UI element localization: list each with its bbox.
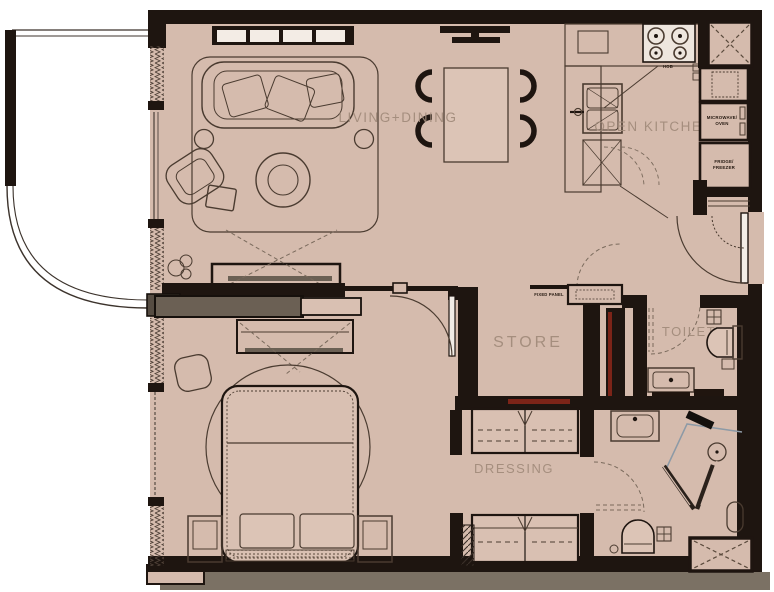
- curtain-strip: [150, 46, 164, 106]
- balcony: [5, 30, 150, 308]
- microwave-label-line1: MICROWAVE/: [707, 115, 738, 120]
- bedroom-dresser: [237, 320, 353, 353]
- headboard: [226, 550, 354, 561]
- sliding-panel-tan: [301, 298, 361, 315]
- bedroom-door-leaf: [449, 296, 455, 356]
- hob-burner-dot: [654, 51, 657, 54]
- toilet-wall-top-left: [622, 295, 647, 308]
- shelf-box: [250, 30, 279, 42]
- fixed-panel-line: [530, 285, 568, 289]
- curtain-strip: [150, 506, 164, 566]
- floor-plan-svg: LIVING+DINING HOB: [0, 0, 774, 592]
- entry-opening: [746, 212, 764, 284]
- wall-segment: [580, 410, 594, 457]
- appliance-column: MICROWAVE/ OVEN FRIDGE/ FREEZER: [698, 22, 752, 188]
- fridge-label-line2: FREEZER: [713, 165, 736, 170]
- partition-wall: [162, 283, 345, 297]
- fridge-label-line1: FRIDGE/: [714, 159, 734, 164]
- sink-faucet-dot: [633, 417, 637, 421]
- microwave-label-line2: OVEN: [715, 121, 728, 126]
- entry-threshold: [705, 188, 752, 197]
- fridge-freezer-unit: FRIDGE/ FREEZER: [700, 143, 750, 188]
- tv-bar: [440, 26, 510, 33]
- floor-plan-page: LIVING+DINING HOB: [0, 0, 774, 592]
- service-shaft-bottom: [690, 538, 752, 571]
- toilet-wall-top-right: [700, 295, 752, 308]
- bedroom-right-wall-top: [450, 410, 462, 455]
- mullion: [148, 383, 164, 392]
- living-dining-label: LIVING+DINING: [339, 110, 458, 125]
- washer-unit: [700, 68, 748, 101]
- tv-shelf: [452, 37, 500, 43]
- wall-red-accent: [508, 399, 570, 404]
- wardrobe-bottom: [472, 515, 578, 562]
- mullion: [148, 219, 164, 228]
- wardrobe-top: [472, 409, 578, 453]
- rain-shower-dot: [715, 450, 718, 453]
- kitchen-store-niche: [568, 285, 622, 304]
- store-label: STORE: [493, 334, 563, 351]
- entry-side-wall: [693, 180, 707, 215]
- tv-console-living: [212, 264, 340, 286]
- store-right-wall: [583, 300, 600, 403]
- hob: HOB: [643, 24, 695, 69]
- hob-label: HOB: [663, 64, 673, 69]
- shelf-box: [217, 30, 246, 42]
- wall-segment: [580, 513, 594, 568]
- wc-bowl: [707, 328, 733, 357]
- mullion: [148, 101, 164, 110]
- bed: [222, 386, 358, 562]
- microwave-oven-unit: MICROWAVE/ OVEN: [700, 103, 748, 140]
- shelf-box: [283, 30, 312, 42]
- mullion: [148, 497, 164, 506]
- bottom-edge-band: [160, 572, 770, 590]
- tv-console: [212, 264, 340, 286]
- shelf-box: [316, 30, 345, 42]
- bathroom-right-wall: [737, 410, 752, 538]
- pillow: [300, 514, 354, 548]
- wc-bowl: [622, 520, 654, 553]
- pillow: [240, 514, 294, 548]
- hob-burner-dot: [678, 34, 682, 38]
- vanity-faucet-dot: [669, 378, 673, 382]
- wall-top: [150, 10, 762, 24]
- fixed-panel-label: FIXED PANEL: [534, 292, 564, 297]
- washer-box: [700, 68, 748, 101]
- hob-burner-dot: [678, 51, 681, 54]
- wall-shelf-unit: [212, 26, 354, 45]
- store-left-wall: [458, 287, 478, 399]
- balcony-side-wall: [5, 30, 16, 186]
- hatched-post: [461, 525, 474, 566]
- wall-left-top-column: [148, 10, 166, 48]
- hob-burner-dot: [654, 34, 658, 38]
- toilet-left-wall: [633, 308, 647, 396]
- curtain-strip: [150, 228, 164, 290]
- toilet-right-wall: [737, 308, 752, 396]
- service-shaft-top: [708, 22, 752, 66]
- curtain-strip: [150, 318, 164, 384]
- dressing-label: DRESSING: [474, 461, 554, 476]
- shaft-box: [708, 22, 752, 66]
- balcony-curved-rail-inner: [13, 186, 148, 300]
- open-kitchen-label: OPEN KITCHEN: [594, 119, 713, 134]
- sliding-handle: [393, 283, 407, 293]
- dresser-shelf: [245, 348, 343, 352]
- sliding-panel-gray: [155, 296, 303, 317]
- mid-horizontal-wall: [455, 396, 752, 410]
- wall-red-accent: [608, 312, 612, 400]
